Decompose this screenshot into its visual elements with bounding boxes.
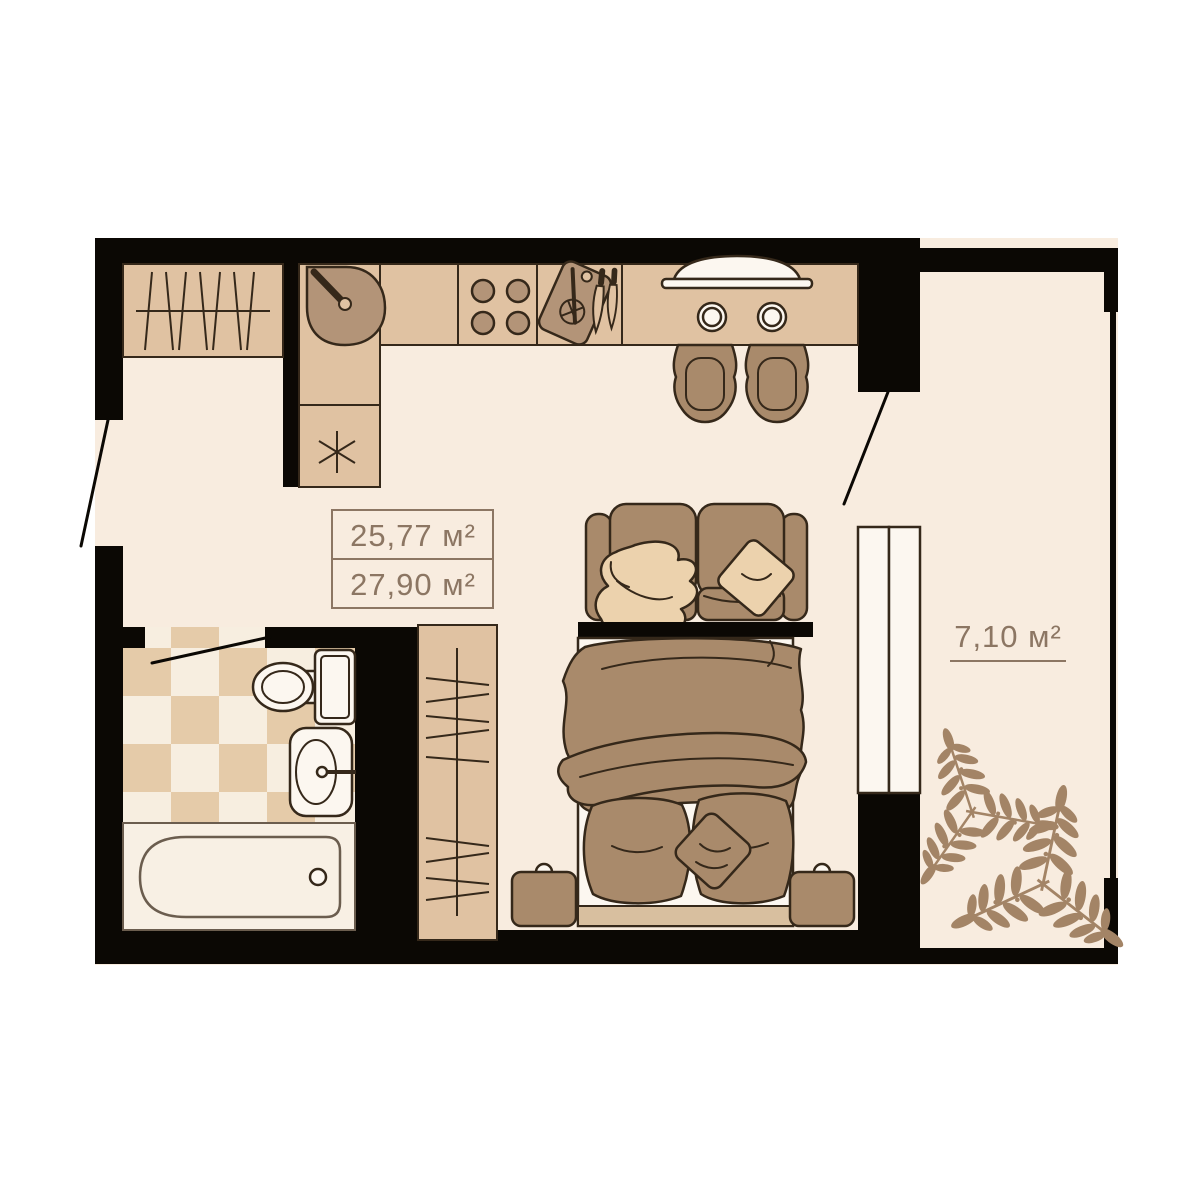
entry-closet: [123, 264, 283, 357]
kitchen-sink-icon: [307, 267, 385, 345]
bathroom-sink-icon: [290, 728, 356, 816]
bar-chair: [746, 345, 808, 422]
bottom-wall: [95, 930, 920, 964]
bathtub-icon: [123, 823, 355, 930]
tv-console: [578, 622, 813, 637]
kitchen-divider-wall: [283, 264, 299, 487]
bathroom-wall-right: [265, 627, 355, 648]
fridge: [299, 405, 380, 487]
bar-chair: [674, 345, 736, 422]
bed-pillow: [584, 798, 690, 903]
balcony-glazing-line: [1110, 312, 1116, 878]
living-area-label: 25,77 м²: [350, 518, 476, 553]
balcony-right-top-stub: [1104, 248, 1118, 312]
kitchen-counter-section: [380, 264, 458, 345]
balcony-partition-lower: [858, 793, 920, 948]
plate-icon: [758, 303, 786, 331]
balcony-top-wall: [920, 248, 1118, 272]
bathroom-wall-left-stub: [123, 627, 145, 648]
bed: [558, 638, 806, 926]
nightstand: [790, 864, 854, 926]
floor-plan: 25,77 м² 27,90 м² 7,10 м²: [0, 0, 1200, 1200]
balcony-area-text: 7,10 м²: [954, 619, 1062, 654]
plumbing-shaft: [355, 627, 418, 930]
top-wall: [95, 238, 920, 264]
total-area-label: 27,90 м²: [350, 567, 476, 602]
balcony-partition-upper: [858, 264, 920, 392]
balcony-bottom-wall: [920, 948, 1118, 964]
wardrobe: [418, 625, 497, 940]
nightstand: [512, 864, 576, 926]
balcony-window: [858, 527, 920, 793]
bed-blanket: [558, 638, 806, 813]
bed-headboard: [578, 906, 793, 926]
left-wall-upper: [95, 238, 123, 420]
plate-icon: [698, 303, 726, 331]
left-wall-lower: [95, 546, 123, 964]
area-label-box: 25,77 м² 27,90 м²: [332, 510, 493, 608]
